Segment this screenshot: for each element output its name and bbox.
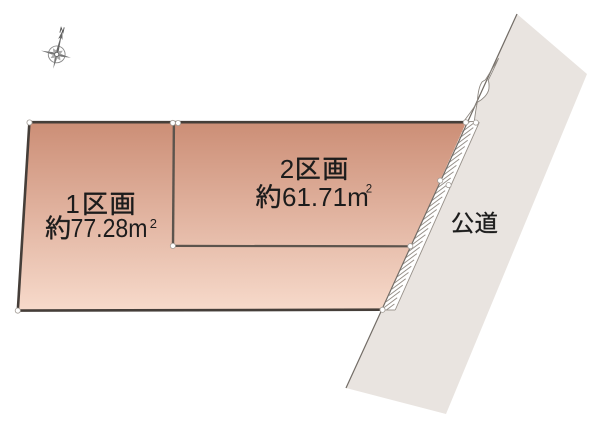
svg-text:61.71m: 61.71m (282, 182, 369, 212)
svg-text:2: 2 (280, 154, 294, 184)
svg-text:77.28m: 77.28m (71, 213, 148, 243)
svg-text:2: 2 (150, 216, 157, 231)
svg-text:2: 2 (366, 184, 372, 196)
